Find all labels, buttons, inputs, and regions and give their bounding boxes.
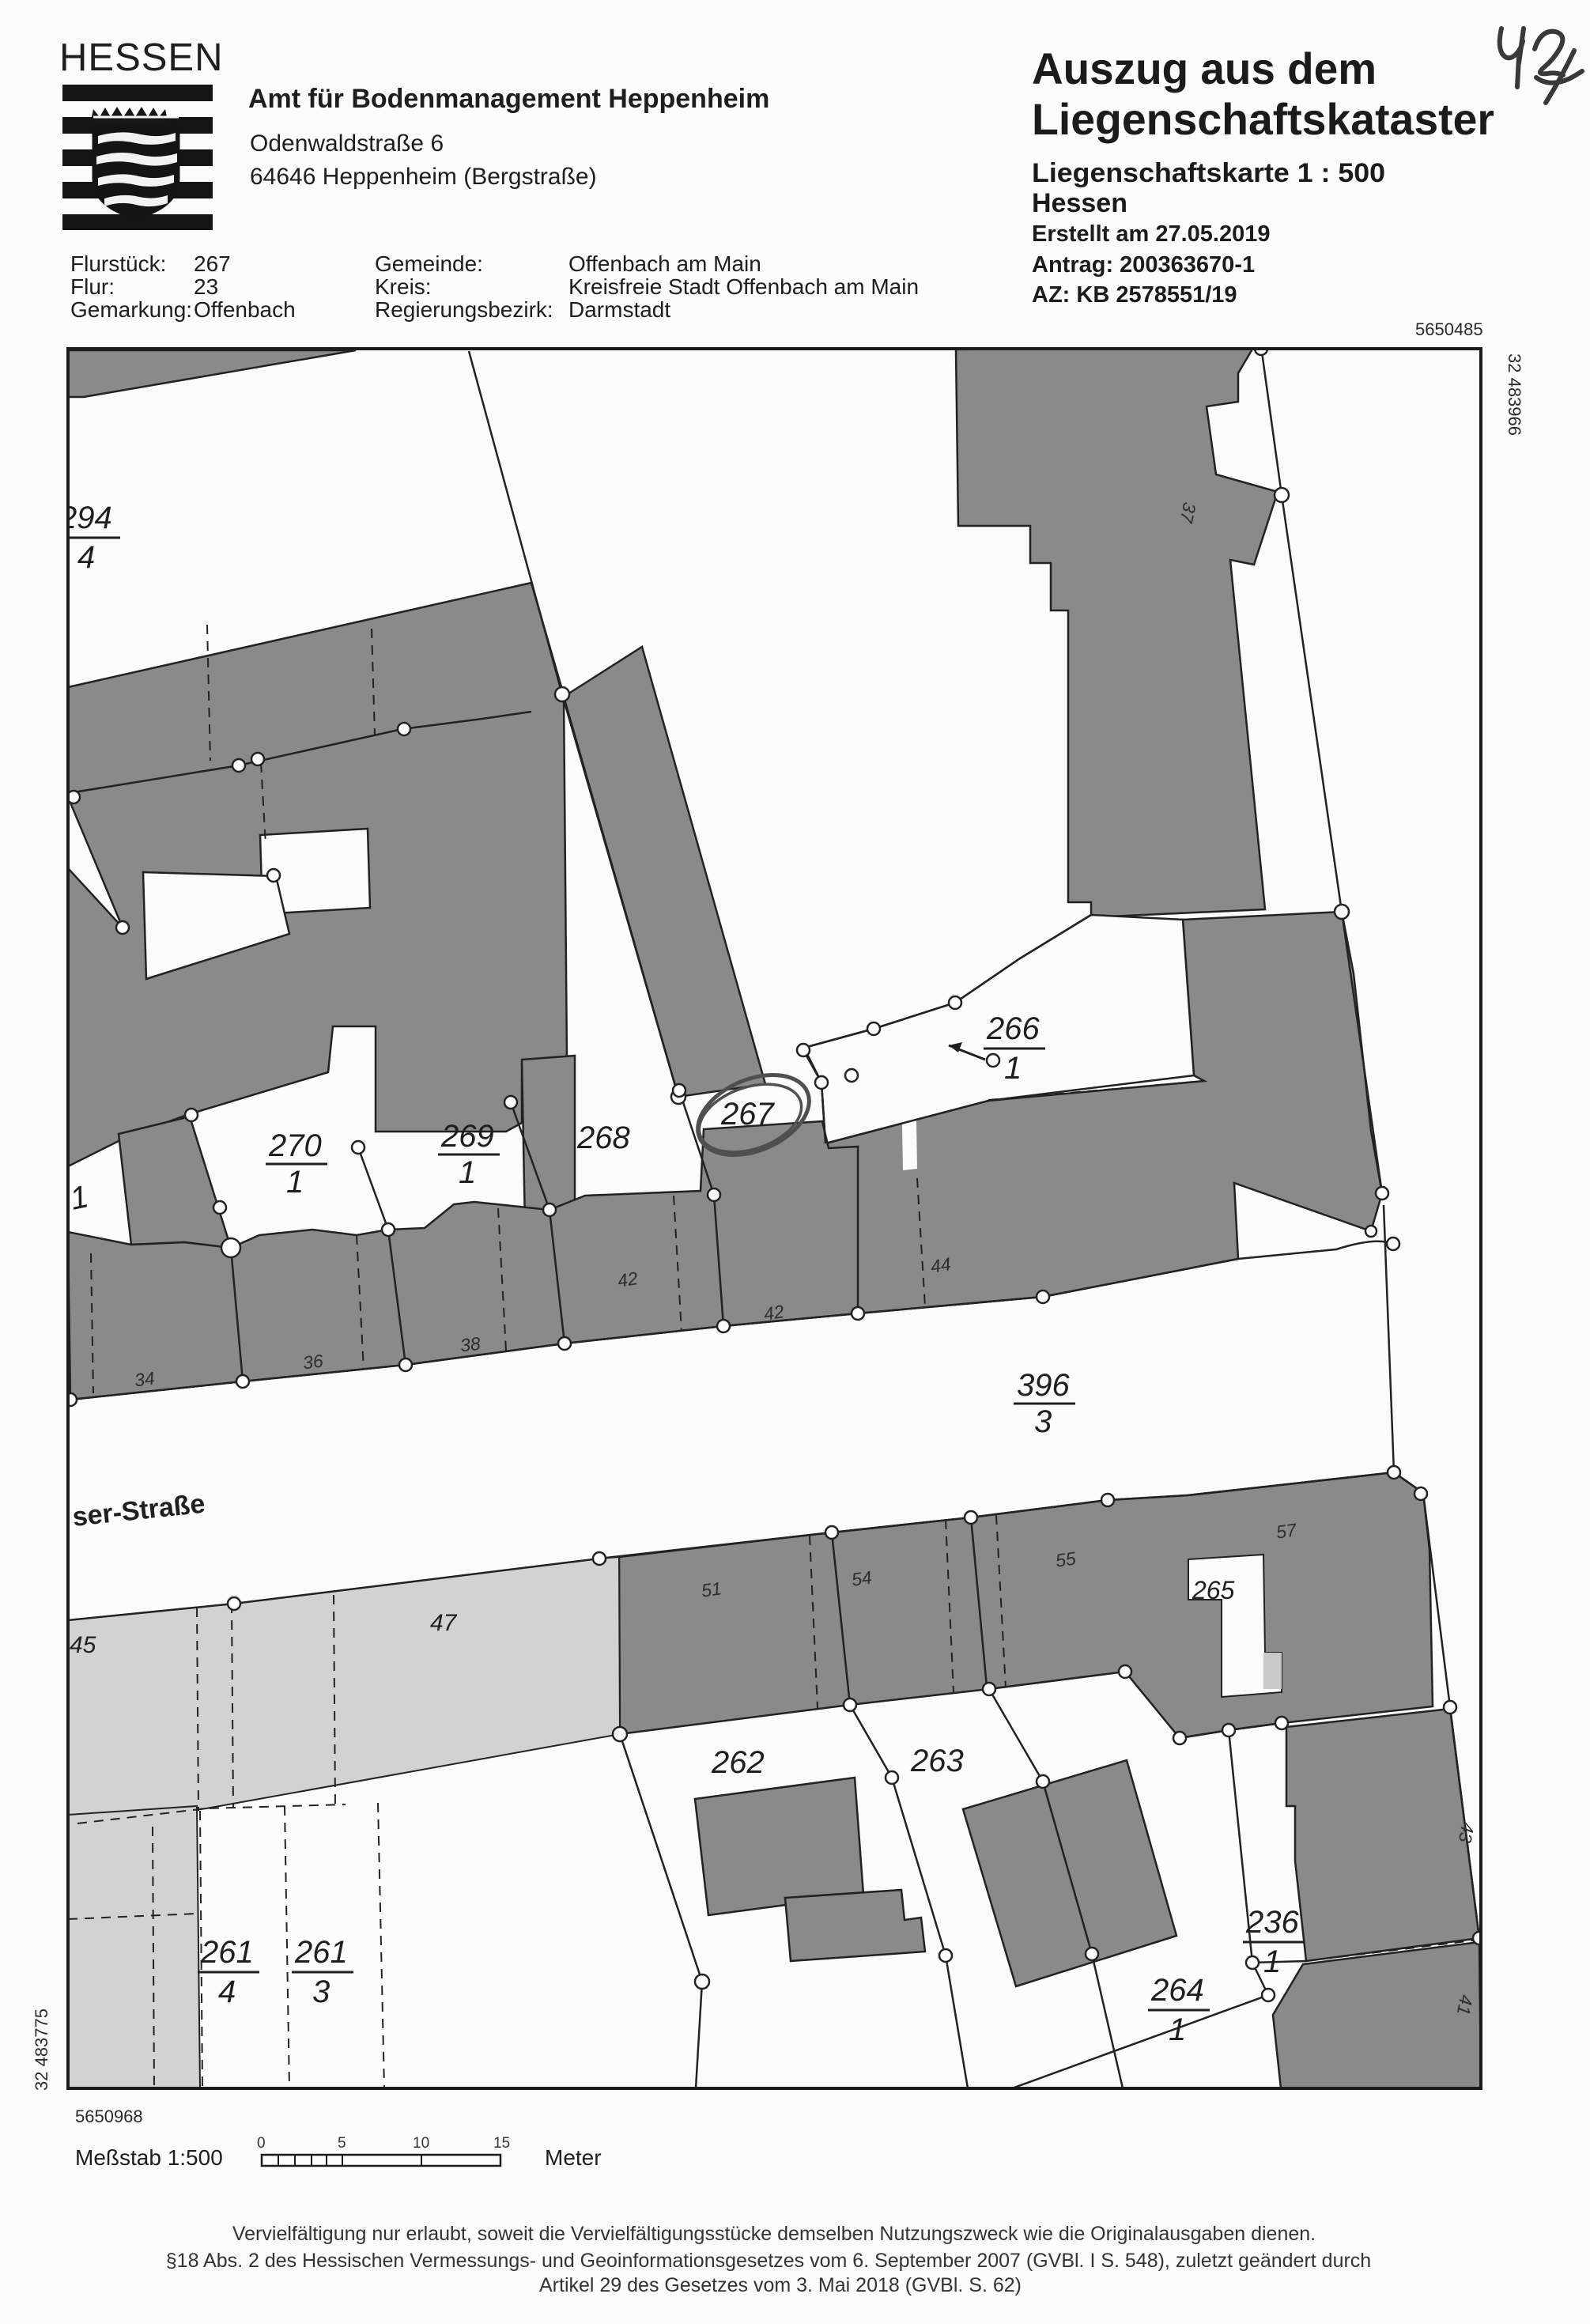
- svg-text:Liegenschaftskataster: Liegenschaftskataster: [1032, 94, 1494, 144]
- svg-text:262: 262: [711, 1745, 765, 1780]
- svg-text:268: 268: [576, 1120, 630, 1155]
- svg-text:5650485: 5650485: [1415, 319, 1483, 339]
- svg-text:Liegenschaftskarte 1 : 500: Liegenschaftskarte 1 : 500: [1032, 158, 1385, 188]
- svg-text:32 483966: 32 483966: [1505, 353, 1524, 436]
- svg-text:270: 270: [268, 1128, 322, 1163]
- svg-text:267: 267: [720, 1097, 775, 1132]
- svg-text:54: 54: [850, 1566, 873, 1589]
- svg-text:Hessen: Hessen: [1032, 188, 1127, 218]
- svg-text:396: 396: [1017, 1368, 1070, 1403]
- svg-text:Amt für Bodenmanagement Heppen: Amt für Bodenmanagement Heppenheim: [248, 84, 769, 114]
- svg-text:Odenwaldstraße 6: Odenwaldstraße 6: [250, 130, 444, 157]
- svg-text:Gemeinde:: Gemeinde:: [375, 251, 483, 276]
- svg-text:4: 4: [218, 1974, 236, 2009]
- svg-text:Offenbach am Main: Offenbach am Main: [568, 251, 761, 276]
- svg-text:Flur:: Flur:: [70, 274, 115, 299]
- svg-text:36: 36: [302, 1351, 325, 1374]
- svg-text:3: 3: [1034, 1404, 1052, 1439]
- svg-text:Kreisfreie Stadt Offenbach am: Kreisfreie Stadt Offenbach am Main: [568, 274, 919, 299]
- svg-text:Erstellt am 27.05.2019: Erstellt am 27.05.2019: [1032, 221, 1270, 247]
- svg-text:ser-Straße: ser-Straße: [71, 1489, 206, 1532]
- svg-text:267: 267: [194, 251, 231, 276]
- svg-text:Artikel 29 des Gesetzes vom 3.: Artikel 29 des Gesetzes vom 3. Mai 2018 …: [539, 2274, 1022, 2296]
- svg-text:261: 261: [294, 1935, 348, 1970]
- svg-text:Meter: Meter: [545, 2145, 602, 2170]
- svg-text:AZ: KB 2578551/19: AZ: KB 2578551/19: [1032, 282, 1237, 308]
- svg-text:44: 44: [929, 1253, 952, 1277]
- svg-text:23: 23: [194, 274, 218, 299]
- svg-text:Regierungsbezirk:: Regierungsbezirk:: [375, 297, 553, 322]
- svg-text:Darmstadt: Darmstadt: [568, 297, 670, 322]
- svg-text:55: 55: [1054, 1547, 1077, 1570]
- svg-text:3: 3: [312, 1974, 330, 2009]
- svg-text:Flurstück:: Flurstück:: [70, 251, 166, 276]
- svg-text:1: 1: [1263, 1944, 1281, 1979]
- svg-text:Vervielfältigung nur erlaubt,: Vervielfältigung nur erlaubt, soweit die…: [232, 2223, 1316, 2245]
- svg-text:1: 1: [1169, 2012, 1186, 2047]
- svg-text:15: 15: [493, 2135, 510, 2152]
- svg-text:42: 42: [616, 1268, 640, 1291]
- svg-text:64646 Heppenheim (Bergstraße): 64646 Heppenheim (Bergstraße): [250, 164, 597, 190]
- svg-text:51: 51: [700, 1578, 723, 1600]
- svg-text:Offenbach: Offenbach: [194, 297, 296, 322]
- svg-text:47: 47: [430, 1610, 458, 1636]
- svg-text:265: 265: [1192, 1576, 1235, 1604]
- svg-text:4: 4: [77, 540, 95, 575]
- svg-text:HESSEN: HESSEN: [59, 36, 224, 79]
- svg-text:42: 42: [762, 1301, 786, 1324]
- svg-text:Kreis:: Kreis:: [375, 274, 432, 299]
- svg-text:32 483775: 32 483775: [32, 2008, 51, 2091]
- svg-text:34: 34: [134, 1368, 157, 1391]
- svg-text:§18 Abs. 2 des Hessischen Verm: §18 Abs. 2 des Hessischen Vermessungs- u…: [166, 2250, 1371, 2272]
- svg-text:57: 57: [1275, 1519, 1298, 1542]
- svg-text:1: 1: [459, 1155, 476, 1190]
- svg-text:263: 263: [910, 1744, 964, 1778]
- svg-text:1: 1: [1004, 1051, 1022, 1086]
- svg-text:1: 1: [286, 1165, 304, 1200]
- svg-text:236: 236: [1245, 1905, 1299, 1940]
- svg-text:10: 10: [413, 2135, 429, 2152]
- svg-text:Gemarkung:: Gemarkung:: [70, 297, 192, 322]
- svg-text:Meßstab 1:500: Meßstab 1:500: [75, 2145, 223, 2170]
- svg-text:0: 0: [257, 2135, 266, 2152]
- svg-text:5650968: 5650968: [75, 2107, 143, 2126]
- svg-text:Auszug aus dem: Auszug aus dem: [1032, 43, 1377, 93]
- svg-text:5: 5: [338, 2135, 346, 2152]
- svg-text:266: 266: [986, 1011, 1040, 1046]
- svg-text:43: 43: [1455, 1821, 1479, 1845]
- svg-text:264: 264: [1150, 1973, 1204, 2008]
- svg-text:45: 45: [70, 1632, 96, 1658]
- svg-text:Antrag: 200363670-1: Antrag: 200363670-1: [1032, 252, 1255, 278]
- svg-text:269: 269: [440, 1119, 494, 1154]
- svg-text:41: 41: [1453, 1993, 1477, 2017]
- svg-text:261: 261: [200, 1935, 254, 1970]
- svg-text:38: 38: [459, 1333, 482, 1356]
